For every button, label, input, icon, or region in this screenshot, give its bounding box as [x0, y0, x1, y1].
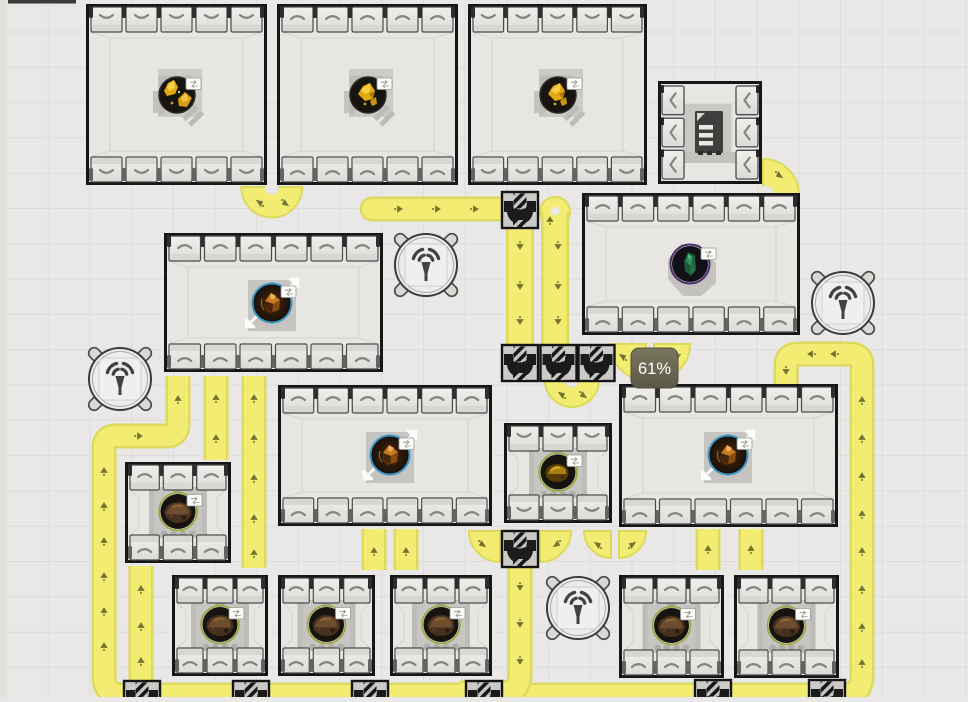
- svg-text:61%: 61%: [638, 360, 671, 378]
